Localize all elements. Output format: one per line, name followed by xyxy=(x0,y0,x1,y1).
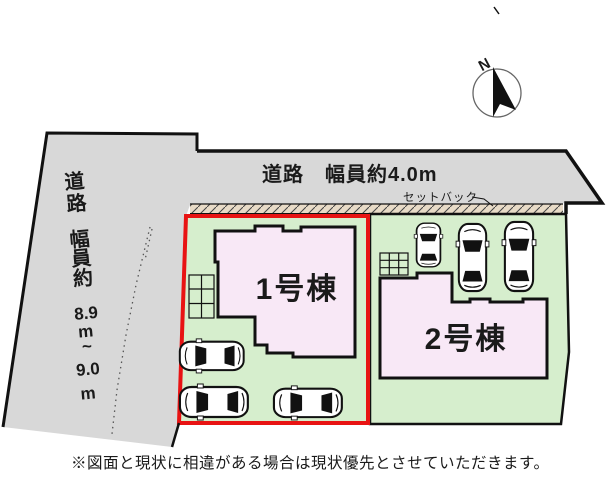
car-icon xyxy=(414,223,443,267)
top-road-label: 道路 幅員約4.0m xyxy=(262,162,438,186)
left-road-label-line: 8.9 xyxy=(73,303,98,324)
left-road-label-line: 9.0 xyxy=(75,359,100,380)
car-icon xyxy=(274,386,342,420)
car-icon xyxy=(456,224,489,291)
setback-strip xyxy=(190,204,563,214)
left-road-label-line: 路 xyxy=(65,190,88,216)
tick-mark xyxy=(494,7,499,14)
left-road-label-line: 道 xyxy=(63,169,85,195)
disclaimer-text: ※図面と現状に相違がある場合は現状優先とさせていただきます。 xyxy=(71,454,549,472)
setback-label: セットバック xyxy=(403,191,478,204)
left-road-label-line: 約 xyxy=(72,265,94,291)
north-compass-icon: N xyxy=(473,7,521,117)
left-road-label-line: ~ xyxy=(81,337,93,357)
car-icon xyxy=(180,384,248,420)
building-1-label: 1号棟 xyxy=(256,273,339,306)
car-icon xyxy=(502,222,536,291)
car-icon xyxy=(180,339,244,373)
building-2-label: 2号棟 xyxy=(425,323,508,356)
left-road-label-line: m xyxy=(80,383,97,403)
site-plan-canvas: 道路 幅員約4.0m セットバック 道 路 幅 員 約 8.9 m ~ 9.0 … xyxy=(0,0,606,480)
site-plan: 道路 幅員約4.0m セットバック 道 路 幅 員 約 8.9 m ~ 9.0 … xyxy=(0,0,606,480)
